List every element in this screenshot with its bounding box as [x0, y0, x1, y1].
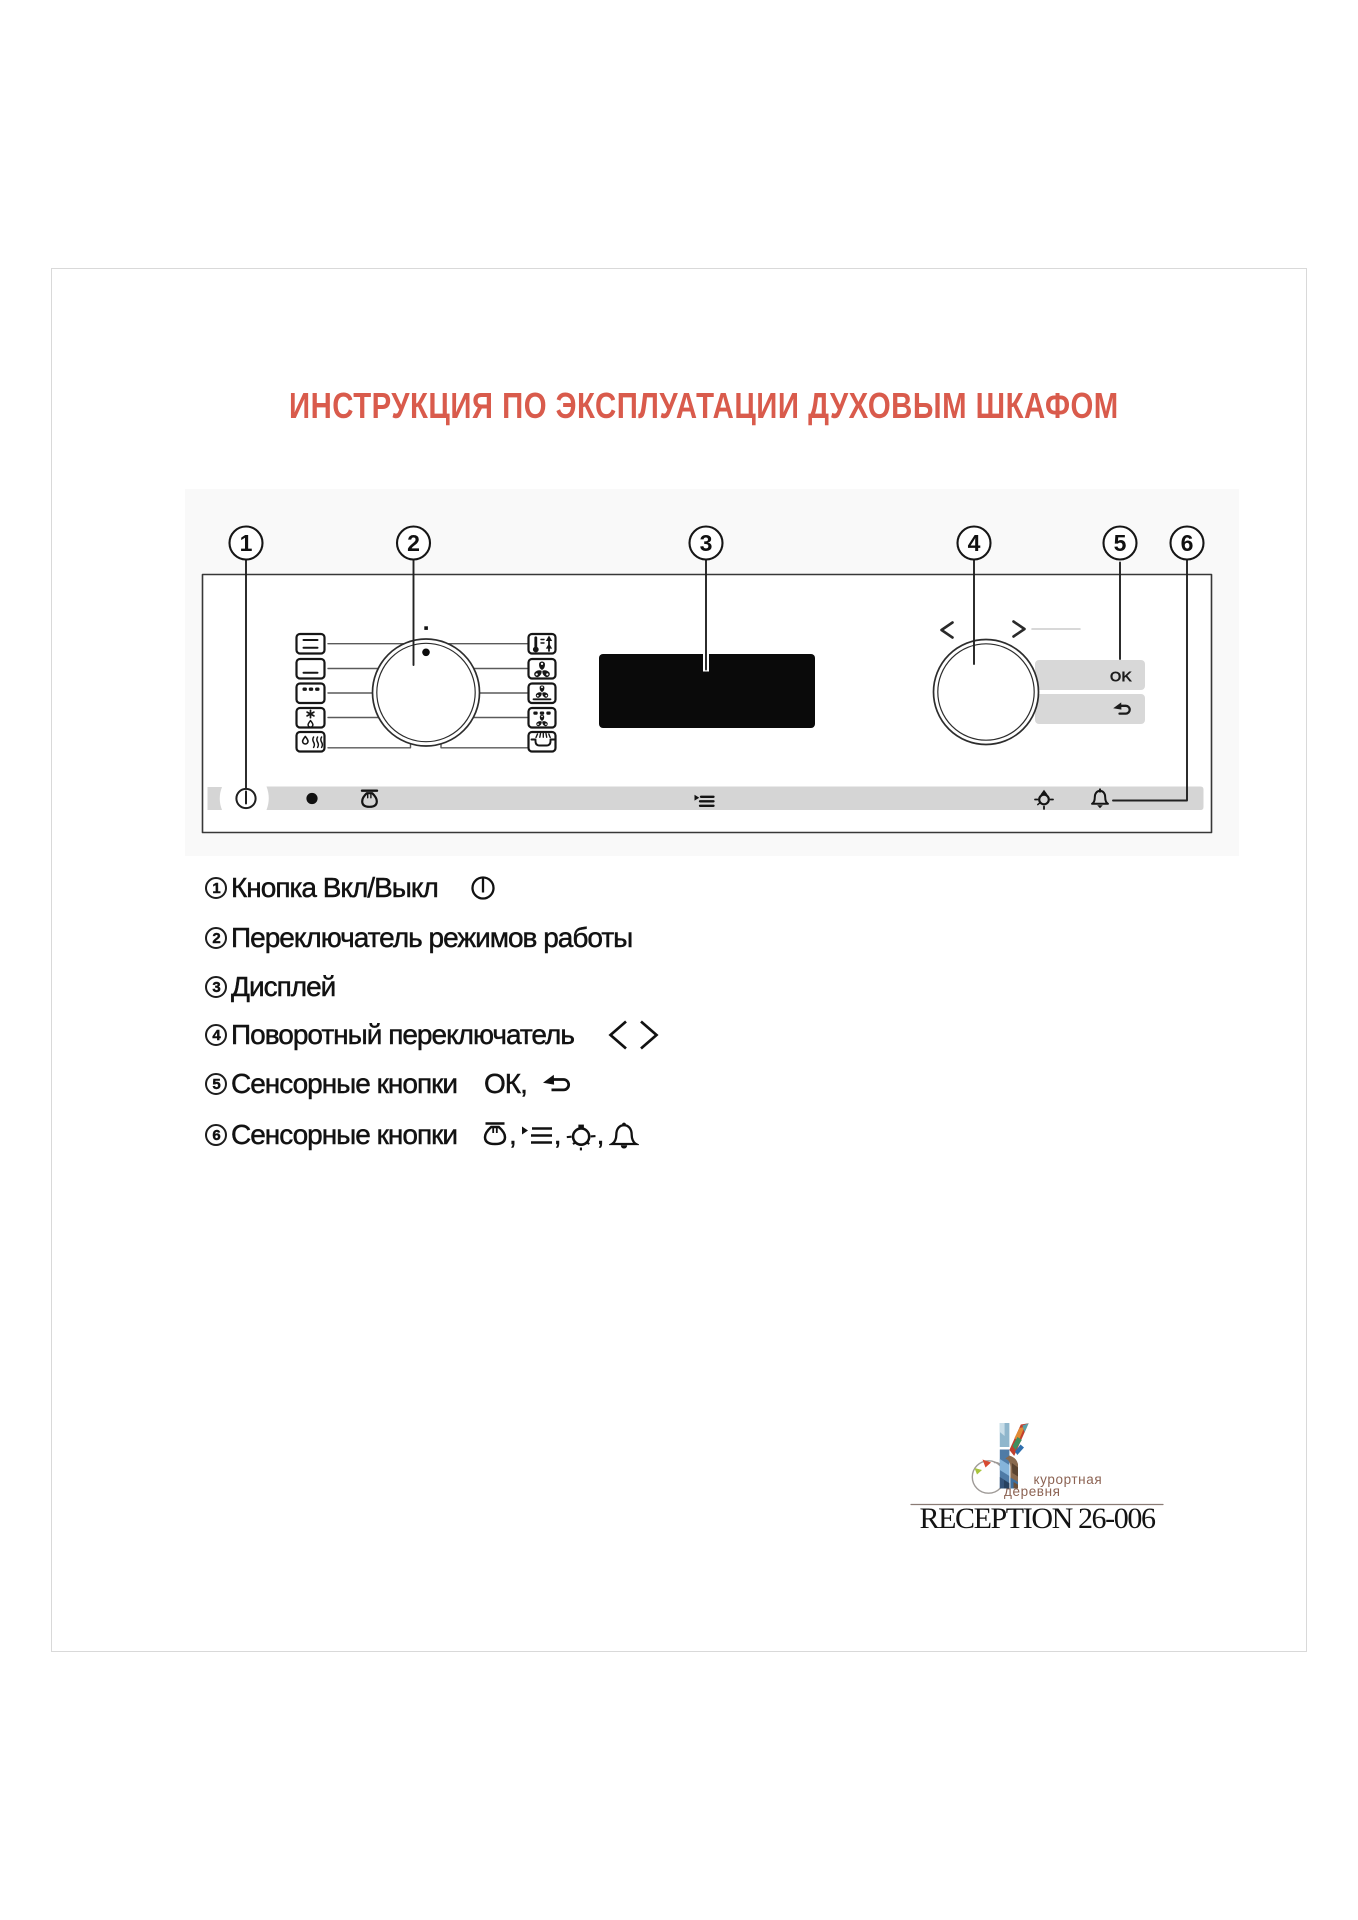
svg-text:OK: OK	[1110, 669, 1133, 686]
svg-text:деревня: деревня	[1004, 1484, 1061, 1499]
svg-text:4: 4	[968, 530, 981, 556]
svg-text:5: 5	[1114, 530, 1127, 556]
svg-text:1: 1	[240, 530, 253, 556]
svg-text:6: 6	[1181, 530, 1194, 556]
svg-text:2: 2	[407, 530, 420, 556]
svg-text:3: 3	[700, 530, 713, 556]
